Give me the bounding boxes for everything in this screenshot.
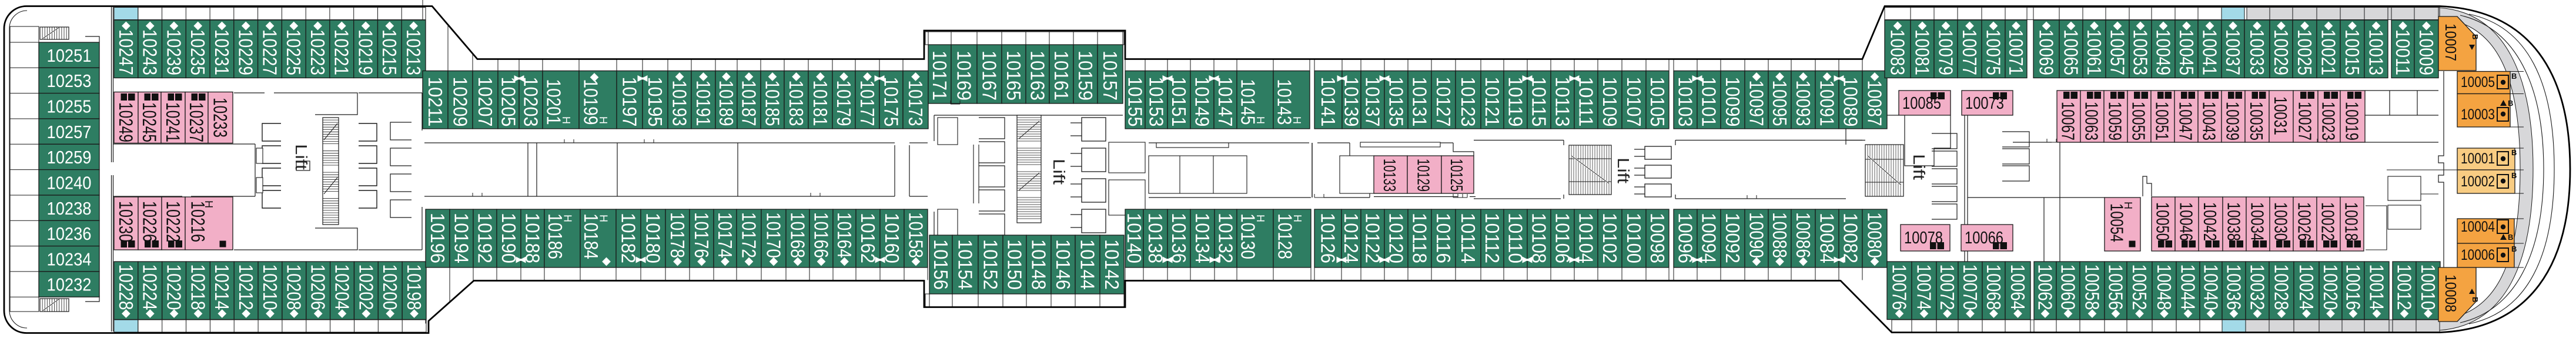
svg-text:10176: 10176 — [691, 212, 712, 258]
svg-text:10251: 10251 — [47, 45, 92, 66]
svg-text:10175: 10175 — [880, 77, 902, 127]
svg-text:10228: 10228 — [115, 265, 137, 310]
svg-text:10099: 10099 — [1722, 77, 1744, 127]
svg-text:10049: 10049 — [2152, 29, 2174, 75]
svg-text:10135: 10135 — [1385, 77, 1407, 127]
svg-text:10095: 10095 — [1769, 81, 1791, 126]
svg-text:10090: 10090 — [1745, 212, 1767, 258]
svg-text:10015: 10015 — [2341, 29, 2363, 75]
svg-text:10132: 10132 — [1215, 213, 1236, 263]
svg-text:10259: 10259 — [47, 147, 92, 168]
svg-text:10223: 10223 — [307, 29, 329, 75]
svg-text:10032: 10032 — [2246, 265, 2268, 310]
svg-text:10087: 10087 — [1864, 81, 1885, 126]
svg-text:10081: 10081 — [1911, 29, 1933, 75]
svg-text:10142: 10142 — [1101, 239, 1123, 290]
svg-text:10008: 10008 — [2442, 275, 2460, 312]
svg-text:10187: 10187 — [738, 81, 760, 126]
svg-text:B: B — [2508, 99, 2513, 108]
svg-text:10209: 10209 — [449, 77, 471, 127]
svg-text:H: H — [562, 215, 574, 222]
svg-text:10034: 10034 — [2247, 202, 2267, 241]
svg-text:10170: 10170 — [762, 212, 784, 258]
svg-text:10231: 10231 — [211, 29, 233, 75]
svg-text:10195: 10195 — [644, 77, 666, 127]
svg-text:10247: 10247 — [115, 29, 137, 75]
svg-text:H: H — [560, 116, 572, 124]
svg-text:10007: 10007 — [2442, 24, 2460, 61]
svg-text:10046: 10046 — [2176, 202, 2196, 241]
svg-text:10067: 10067 — [2058, 102, 2078, 140]
svg-text:H: H — [203, 200, 215, 208]
svg-text:B: B — [2508, 233, 2513, 242]
svg-text:10097: 10097 — [1745, 81, 1767, 126]
svg-text:10045: 10045 — [2176, 29, 2197, 75]
svg-text:10197: 10197 — [618, 77, 640, 127]
svg-text:10194: 10194 — [450, 213, 472, 263]
svg-text:10010: 10010 — [2417, 265, 2439, 310]
svg-text:10023: 10023 — [2318, 102, 2339, 140]
svg-text:10162: 10162 — [857, 213, 879, 263]
svg-text:10124: 10124 — [1340, 213, 1362, 263]
svg-text:10198: 10198 — [403, 265, 425, 310]
svg-text:10154: 10154 — [954, 239, 976, 290]
svg-text:10083: 10083 — [1886, 29, 1908, 75]
svg-text:10063: 10063 — [2081, 102, 2102, 140]
svg-text:10172: 10172 — [738, 212, 760, 258]
svg-text:10208: 10208 — [283, 265, 305, 310]
svg-text:10120: 10120 — [1385, 213, 1407, 263]
svg-text:10089: 10089 — [1839, 77, 1861, 127]
svg-text:10138: 10138 — [1145, 213, 1166, 263]
svg-text:10241: 10241 — [162, 102, 183, 142]
svg-text:10155: 10155 — [1124, 77, 1146, 127]
svg-text:H: H — [1291, 116, 1303, 124]
svg-text:10123: 10123 — [1457, 77, 1479, 127]
svg-text:10041: 10041 — [2199, 29, 2220, 75]
svg-text:10011: 10011 — [2392, 29, 2414, 75]
svg-text:10014: 10014 — [2366, 265, 2387, 310]
svg-text:10111: 10111 — [1575, 77, 1597, 127]
svg-text:10074: 10074 — [1913, 265, 1935, 310]
svg-text:10069: 10069 — [2035, 29, 2057, 75]
svg-text:Lift: Lift — [1614, 158, 1632, 183]
svg-text:10104: 10104 — [1575, 213, 1597, 263]
svg-text:10210: 10210 — [259, 265, 281, 310]
svg-text:10019: 10019 — [2341, 102, 2362, 140]
svg-text:10139: 10139 — [1340, 77, 1362, 127]
svg-text:10122: 10122 — [1361, 213, 1383, 263]
svg-text:10236: 10236 — [47, 223, 92, 244]
svg-text:10160: 10160 — [881, 213, 903, 263]
svg-text:10182: 10182 — [617, 213, 639, 263]
svg-text:10149: 10149 — [1191, 77, 1213, 127]
svg-text:10173: 10173 — [905, 81, 926, 126]
svg-text:10103: 10103 — [1674, 77, 1696, 127]
svg-text:10051: 10051 — [2152, 102, 2172, 140]
svg-text:10020: 10020 — [2320, 265, 2341, 310]
svg-text:10165: 10165 — [1003, 51, 1025, 101]
svg-text:10161: 10161 — [1051, 51, 1072, 101]
svg-text:10048: 10048 — [2153, 265, 2175, 310]
svg-text:10113: 10113 — [1551, 77, 1573, 127]
svg-text:10013: 10013 — [2365, 29, 2387, 75]
svg-text:10213: 10213 — [403, 29, 424, 75]
svg-text:10159: 10159 — [1075, 51, 1096, 101]
svg-text:10233: 10233 — [209, 98, 230, 138]
svg-text:10126: 10126 — [1317, 213, 1339, 263]
svg-text:10119: 10119 — [1504, 77, 1526, 127]
svg-text:10190: 10190 — [498, 213, 520, 263]
svg-text:10026: 10026 — [2294, 202, 2314, 241]
svg-text:10105: 10105 — [1647, 77, 1668, 127]
svg-text:10033: 10033 — [2246, 29, 2268, 75]
svg-text:10012: 10012 — [2393, 265, 2415, 310]
svg-text:10109: 10109 — [1599, 77, 1621, 127]
svg-text:10101: 10101 — [1698, 77, 1719, 127]
svg-text:Lift: Lift — [1910, 154, 1928, 180]
svg-text:10225: 10225 — [283, 29, 305, 75]
svg-text:10076: 10076 — [1888, 265, 1910, 310]
svg-text:10167: 10167 — [978, 51, 1000, 101]
svg-text:10059: 10059 — [2105, 102, 2125, 140]
svg-text:10215: 10215 — [379, 29, 400, 75]
svg-text:10001: 10001 — [2461, 150, 2495, 167]
svg-text:10060: 10060 — [2057, 265, 2079, 310]
svg-text:10191: 10191 — [692, 81, 714, 126]
svg-text:10039: 10039 — [2222, 102, 2243, 140]
svg-text:10158: 10158 — [905, 212, 926, 258]
svg-text:10079: 10079 — [1935, 29, 1956, 75]
svg-text:10181: 10181 — [809, 81, 831, 126]
svg-text:10088: 10088 — [1769, 212, 1791, 258]
svg-text:10027: 10027 — [2294, 102, 2315, 140]
svg-text:10183: 10183 — [785, 81, 807, 126]
svg-text:10221: 10221 — [331, 29, 353, 75]
svg-text:10226: 10226 — [139, 201, 160, 242]
svg-text:10224: 10224 — [139, 265, 161, 310]
svg-text:10196: 10196 — [427, 213, 449, 263]
svg-text:10086: 10086 — [1792, 212, 1814, 258]
svg-text:10018: 10018 — [2341, 202, 2361, 241]
svg-text:10110: 10110 — [1504, 213, 1526, 263]
svg-text:10153: 10153 — [1145, 77, 1167, 127]
svg-text:10100: 10100 — [1623, 213, 1645, 263]
svg-text:10072: 10072 — [1936, 265, 1958, 310]
svg-text:10004: 10004 — [2461, 219, 2495, 235]
svg-text:10057: 10057 — [2106, 29, 2128, 75]
svg-text:10235: 10235 — [187, 29, 209, 75]
svg-text:10035: 10035 — [2246, 102, 2267, 140]
svg-text:10038: 10038 — [2223, 202, 2244, 241]
svg-text:10134: 10134 — [1192, 213, 1213, 263]
svg-text:10249: 10249 — [115, 102, 136, 142]
svg-text:10245: 10245 — [139, 102, 160, 142]
svg-text:10075: 10075 — [1982, 29, 2004, 75]
svg-text:10185: 10185 — [761, 81, 783, 126]
svg-text:B: B — [2511, 171, 2517, 180]
svg-text:10065: 10065 — [2060, 29, 2082, 75]
svg-text:10009: 10009 — [2416, 29, 2437, 75]
svg-text:10047: 10047 — [2175, 102, 2196, 140]
svg-text:10025: 10025 — [2294, 29, 2316, 75]
svg-text:10193: 10193 — [668, 81, 690, 126]
svg-text:10114: 10114 — [1457, 213, 1479, 263]
svg-text:10050: 10050 — [2152, 202, 2173, 241]
svg-text:10121: 10121 — [1481, 77, 1503, 127]
svg-text:10082: 10082 — [1839, 213, 1861, 263]
svg-text:10232: 10232 — [47, 275, 92, 295]
svg-text:10053: 10053 — [2129, 29, 2151, 75]
svg-text:10227: 10227 — [259, 29, 280, 75]
svg-text:10229: 10229 — [235, 29, 257, 75]
svg-text:10002: 10002 — [2461, 173, 2495, 190]
svg-text:10044: 10044 — [2177, 265, 2199, 310]
svg-text:10003: 10003 — [2461, 106, 2495, 123]
svg-text:Lift: Lift — [1050, 159, 1068, 185]
svg-text:10125: 10125 — [1447, 159, 1466, 192]
svg-text:10136: 10136 — [1168, 213, 1190, 263]
svg-text:10115: 10115 — [1528, 77, 1550, 127]
svg-text:10129: 10129 — [1413, 159, 1432, 192]
svg-text:10022: 10022 — [2317, 202, 2338, 241]
svg-text:10189: 10189 — [715, 81, 737, 126]
svg-text:10016: 10016 — [2342, 265, 2364, 310]
svg-text:10080: 10080 — [1864, 212, 1885, 258]
svg-text:H: H — [1254, 215, 1266, 222]
svg-text:10091: 10091 — [1816, 81, 1838, 126]
svg-text:10112: 10112 — [1481, 213, 1503, 263]
svg-text:10098: 10098 — [1647, 213, 1668, 263]
svg-text:10206: 10206 — [307, 265, 329, 310]
svg-text:10166: 10166 — [810, 212, 832, 258]
svg-text:10220: 10220 — [163, 265, 185, 310]
svg-text:10062: 10062 — [2034, 265, 2056, 310]
svg-text:10218: 10218 — [187, 265, 209, 310]
svg-text:10156: 10156 — [930, 239, 952, 290]
svg-text:10061: 10061 — [2083, 29, 2105, 75]
svg-text:H: H — [2122, 202, 2134, 209]
svg-text:10024: 10024 — [2296, 265, 2317, 310]
svg-text:10200: 10200 — [379, 265, 401, 310]
svg-text:10214: 10214 — [211, 265, 233, 310]
svg-text:10164: 10164 — [834, 212, 855, 258]
svg-text:B: B — [2471, 34, 2480, 39]
svg-text:10140: 10140 — [1123, 213, 1145, 263]
svg-text:10107: 10107 — [1623, 77, 1645, 127]
svg-text:10068: 10068 — [1983, 265, 2005, 310]
svg-text:10030: 10030 — [2270, 202, 2291, 241]
svg-text:10240: 10240 — [47, 173, 92, 193]
svg-text:10151: 10151 — [1168, 77, 1190, 127]
svg-text:10043: 10043 — [2199, 102, 2219, 140]
svg-text:10222: 10222 — [162, 201, 183, 242]
svg-text:10116: 10116 — [1433, 213, 1454, 263]
svg-text:10040: 10040 — [2200, 265, 2222, 310]
svg-text:10006: 10006 — [2461, 247, 2495, 263]
svg-text:B: B — [2471, 297, 2480, 302]
svg-text:10177: 10177 — [857, 81, 878, 126]
svg-text:10031: 10031 — [2270, 96, 2291, 135]
svg-text:10064: 10064 — [2007, 265, 2029, 310]
svg-text:10255: 10255 — [47, 96, 92, 117]
svg-text:10133: 10133 — [1380, 159, 1399, 192]
svg-text:10028: 10028 — [2270, 265, 2292, 310]
svg-text:10147: 10147 — [1215, 77, 1236, 127]
svg-text:10150: 10150 — [1003, 239, 1025, 290]
svg-text:10204: 10204 — [331, 265, 353, 310]
svg-text:10219: 10219 — [355, 29, 377, 75]
svg-text:10230: 10230 — [115, 201, 136, 242]
svg-text:10036: 10036 — [2223, 265, 2244, 310]
svg-text:10021: 10021 — [2317, 29, 2339, 75]
svg-text:10108: 10108 — [1528, 213, 1550, 263]
svg-text:10127: 10127 — [1433, 77, 1454, 127]
svg-text:10239: 10239 — [163, 29, 185, 75]
svg-text:10253: 10253 — [47, 71, 92, 91]
svg-text:H: H — [598, 215, 610, 222]
svg-text:10078: 10078 — [1904, 229, 1943, 247]
svg-text:10102: 10102 — [1599, 213, 1621, 263]
svg-text:10168: 10168 — [787, 212, 808, 258]
svg-text:10029: 10029 — [2270, 29, 2292, 75]
svg-text:10042: 10042 — [2200, 202, 2220, 241]
svg-text:10205: 10205 — [497, 77, 519, 127]
svg-text:10077: 10077 — [1959, 29, 1980, 75]
svg-text:10092: 10092 — [1722, 213, 1744, 263]
svg-text:10141: 10141 — [1317, 77, 1339, 127]
svg-text:10152: 10152 — [979, 239, 1001, 290]
svg-text:H: H — [1292, 215, 1303, 222]
svg-text:10106: 10106 — [1551, 213, 1573, 263]
svg-text:10148: 10148 — [1028, 239, 1049, 290]
svg-text:10037: 10037 — [2222, 29, 2244, 75]
svg-text:10056: 10056 — [2105, 265, 2126, 310]
svg-text:10202: 10202 — [355, 265, 377, 310]
svg-text:10174: 10174 — [714, 212, 736, 258]
svg-text:10163: 10163 — [1026, 51, 1048, 101]
svg-text:10180: 10180 — [642, 213, 664, 263]
svg-text:B: B — [2511, 148, 2517, 157]
svg-text:10131: 10131 — [1409, 77, 1430, 127]
svg-text:10084: 10084 — [1816, 213, 1838, 263]
svg-text:10188: 10188 — [521, 213, 543, 263]
svg-text:10237: 10237 — [186, 102, 207, 142]
svg-text:10243: 10243 — [139, 29, 161, 75]
svg-text:10118: 10118 — [1409, 213, 1430, 263]
svg-text:10192: 10192 — [474, 213, 496, 263]
svg-text:10257: 10257 — [47, 122, 92, 142]
svg-text:10207: 10207 — [474, 77, 496, 127]
svg-text:10052: 10052 — [2129, 265, 2150, 310]
svg-text:10093: 10093 — [1792, 81, 1814, 126]
svg-text:10178: 10178 — [667, 212, 688, 258]
svg-text:10212: 10212 — [235, 265, 257, 310]
svg-text:H: H — [597, 116, 609, 124]
svg-text:10137: 10137 — [1361, 77, 1383, 127]
svg-text:10179: 10179 — [833, 81, 855, 126]
svg-text:10058: 10058 — [2081, 265, 2103, 310]
svg-text:10005: 10005 — [2461, 74, 2495, 91]
svg-text:10094: 10094 — [1698, 213, 1719, 263]
svg-text:10157: 10157 — [1099, 51, 1121, 101]
svg-text:10096: 10096 — [1674, 213, 1696, 263]
svg-text:10171: 10171 — [929, 51, 951, 101]
svg-text:Lift: Lift — [292, 144, 310, 170]
svg-text:10144: 10144 — [1076, 239, 1098, 290]
svg-text:10238: 10238 — [47, 198, 92, 219]
svg-text:10070: 10070 — [1959, 265, 1981, 310]
svg-text:10146: 10146 — [1052, 239, 1074, 290]
svg-text:H: H — [1254, 116, 1266, 124]
svg-text:10055: 10055 — [2128, 102, 2149, 140]
svg-text:10211: 10211 — [424, 77, 446, 127]
svg-text:B: B — [2511, 72, 2517, 81]
svg-text:10234: 10234 — [47, 249, 92, 269]
svg-text:B: B — [2511, 245, 2517, 253]
svg-text:10203: 10203 — [520, 77, 541, 127]
svg-text:10071: 10071 — [2005, 29, 2027, 75]
svg-text:10169: 10169 — [953, 51, 975, 101]
